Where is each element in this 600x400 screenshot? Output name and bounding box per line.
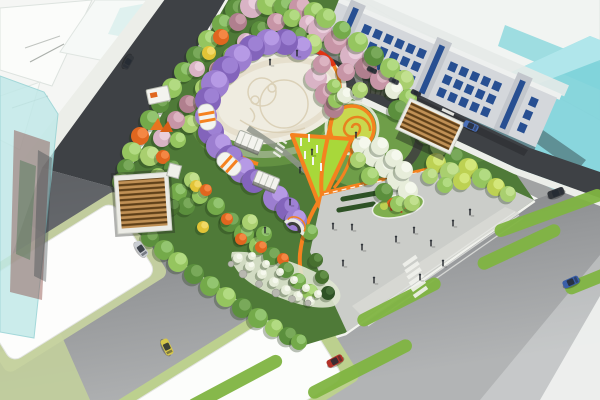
rock xyxy=(289,296,296,303)
rock xyxy=(256,281,263,288)
park-aerial-rendering xyxy=(0,0,600,400)
sculpture-post xyxy=(300,138,302,146)
sculpture-post xyxy=(320,163,322,171)
sculpture-post xyxy=(308,134,310,142)
rock xyxy=(228,261,234,267)
slatted-roof xyxy=(118,178,167,229)
slatted-pavilion-west xyxy=(111,169,175,237)
sculpture-post xyxy=(316,145,318,153)
rock xyxy=(305,300,311,306)
rock xyxy=(272,289,280,297)
scene-canvas xyxy=(0,0,600,400)
small-white-structure xyxy=(167,163,182,179)
sculpture-post xyxy=(304,151,306,159)
sculpture-post xyxy=(312,157,314,165)
rock xyxy=(239,270,247,278)
